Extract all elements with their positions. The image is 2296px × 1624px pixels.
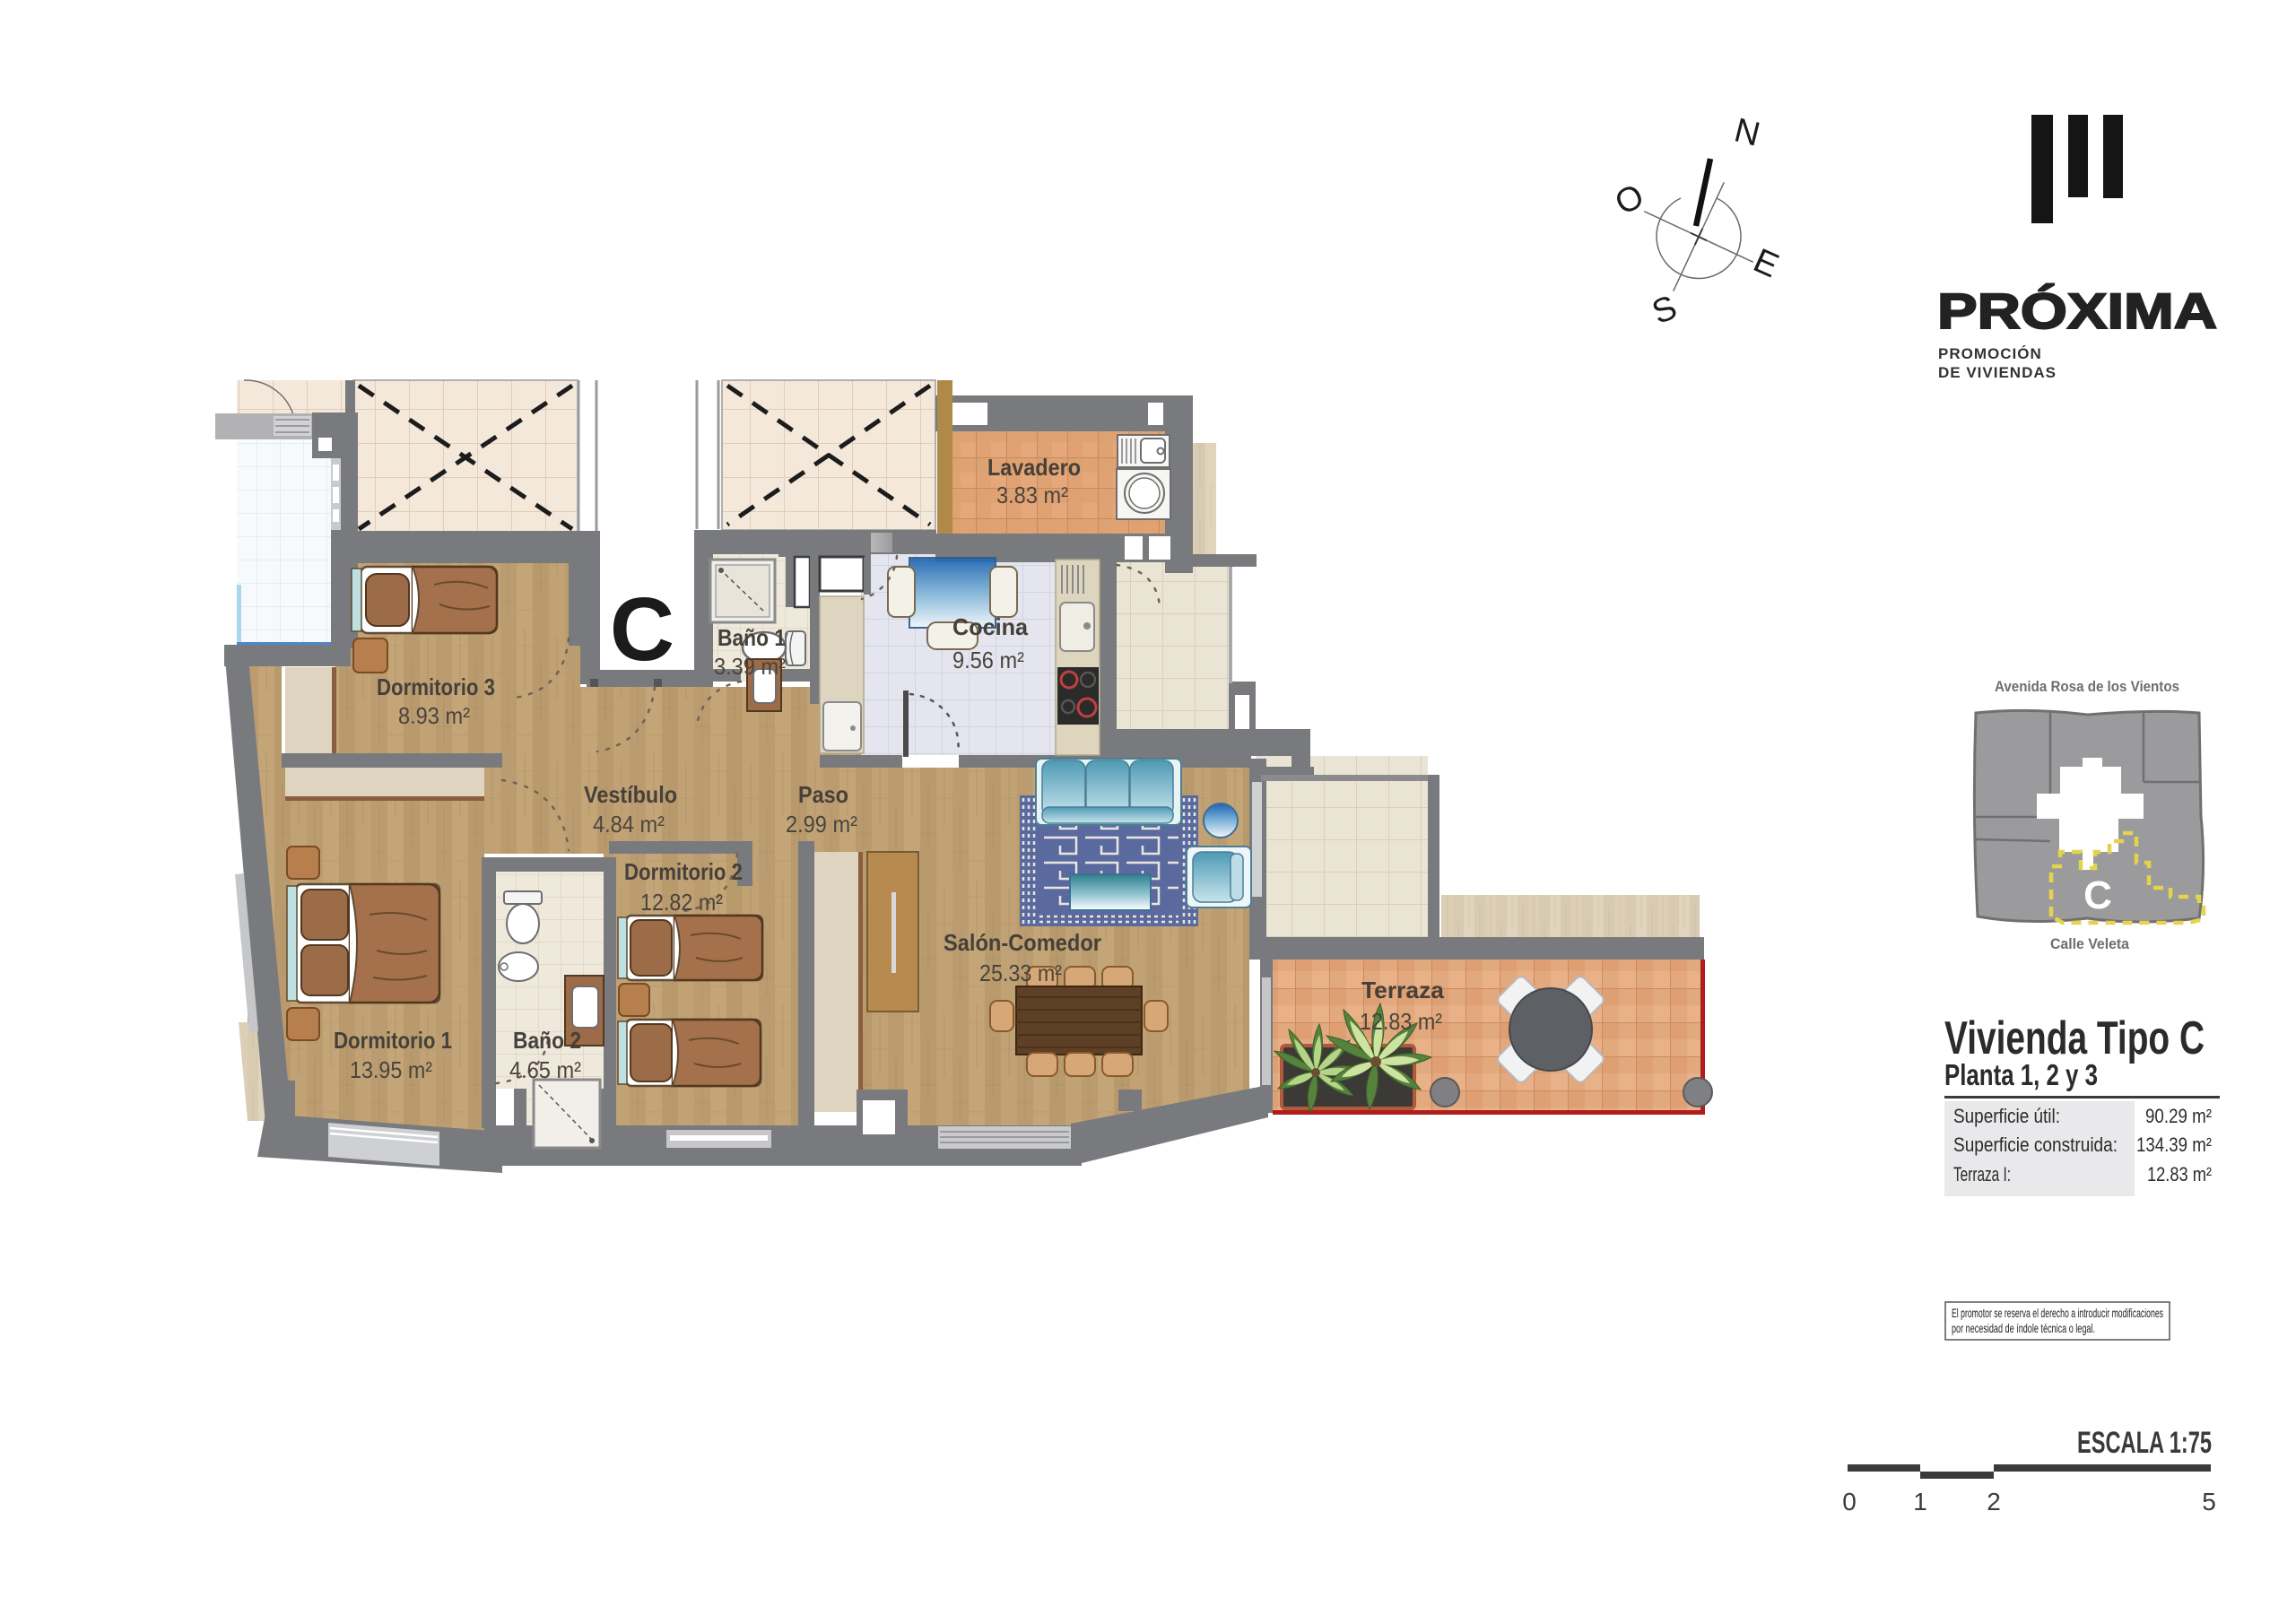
svg-text:por necesidad de índole técnic: por necesidad de índole técnica o legal. [1952, 1321, 2095, 1335]
svg-text:12.82 m²: 12.82 m² [640, 889, 723, 916]
svg-text:Cocina: Cocina [952, 613, 1029, 640]
svg-text:PRÓXIMA: PRÓXIMA [1937, 282, 2217, 339]
svg-text:2: 2 [1987, 1488, 2001, 1515]
svg-text:Terraza I:: Terraza I: [1953, 1163, 2011, 1185]
svg-text:Dormitorio 2: Dormitorio 2 [624, 858, 743, 885]
svg-text:12.83 m²: 12.83 m² [1360, 1008, 1442, 1035]
svg-text:ESCALA 1:75: ESCALA 1:75 [2077, 1426, 2212, 1460]
svg-text:Calle Veleta: Calle Veleta [2050, 935, 2129, 952]
svg-text:Lavadero: Lavadero [987, 454, 1081, 481]
svg-text:8.93 m²: 8.93 m² [398, 702, 470, 729]
svg-text:Vivienda Tipo C: Vivienda Tipo C [1944, 1012, 2205, 1064]
svg-text:3.83 m²: 3.83 m² [996, 482, 1068, 508]
svg-text:Superficie útil:: Superficie útil: [1953, 1105, 2060, 1127]
svg-text:3.39 m²: 3.39 m² [714, 653, 786, 680]
svg-text:Dormitorio 1: Dormitorio 1 [334, 1027, 452, 1054]
svg-text:1: 1 [1913, 1488, 1927, 1515]
svg-text:4.65 m²: 4.65 m² [509, 1056, 581, 1083]
svg-text:Terraza: Terraza [1361, 977, 1445, 1003]
svg-text:Baño 1: Baño 1 [717, 624, 786, 651]
svg-text:Superficie construida:: Superficie construida: [1953, 1133, 2118, 1156]
svg-text:9.56 m²: 9.56 m² [952, 647, 1024, 673]
svg-text:El promotor se reserva el dere: El promotor se reserva el derecho a intr… [1952, 1306, 2163, 1320]
svg-text:DE VIVIENDAS: DE VIVIENDAS [1938, 364, 2057, 381]
svg-text:Salón-Comedor: Salón-Comedor [944, 929, 1101, 956]
svg-text:2.99 m²: 2.99 m² [786, 811, 857, 838]
svg-text:Vestíbulo: Vestíbulo [584, 781, 677, 808]
svg-text:4.84 m²: 4.84 m² [593, 811, 665, 838]
svg-text:Baño 2: Baño 2 [513, 1027, 581, 1054]
svg-text:Paso: Paso [798, 781, 848, 808]
svg-text:C: C [610, 579, 674, 680]
svg-text:25.33 m²: 25.33 m² [979, 960, 1062, 986]
svg-text:13.95 m²: 13.95 m² [350, 1056, 432, 1083]
svg-text:90.29 m²: 90.29 m² [2145, 1105, 2212, 1127]
svg-text:5: 5 [2202, 1488, 2216, 1515]
svg-text:12.83 m²: 12.83 m² [2147, 1163, 2212, 1185]
svg-text:Dormitorio 3: Dormitorio 3 [377, 673, 495, 700]
svg-text:Planta 1, 2 y 3: Planta 1, 2 y 3 [1944, 1058, 2098, 1091]
svg-text:134.39 m²: 134.39 m² [2136, 1133, 2212, 1156]
svg-text:C: C [2083, 873, 2112, 917]
svg-text:PROMOCIÓN: PROMOCIÓN [1938, 345, 2042, 362]
svg-text:Avenida Rosa de los Vientos: Avenida Rosa de los Vientos [1995, 678, 2179, 695]
svg-text:0: 0 [1842, 1488, 1857, 1515]
